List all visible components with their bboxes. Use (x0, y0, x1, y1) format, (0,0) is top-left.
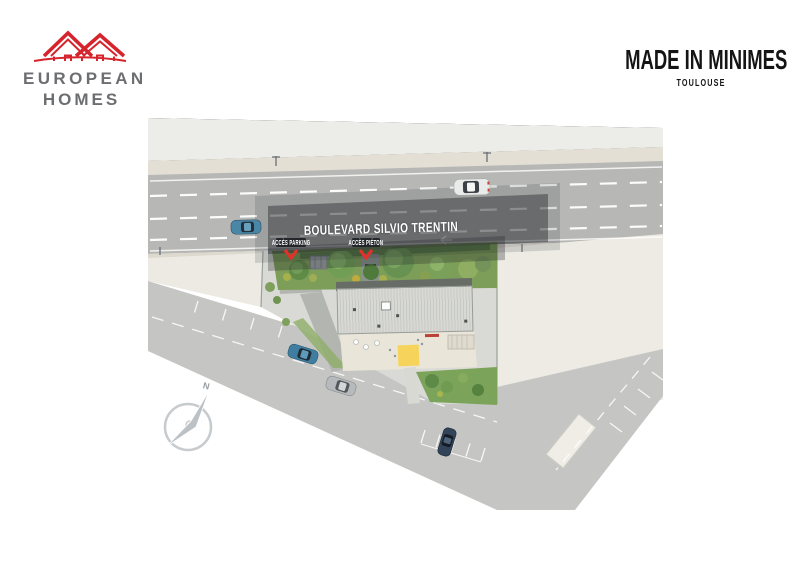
access-pedestrian-text: ACCÈS PIÉTON (349, 238, 384, 247)
site-plan (0, 0, 800, 565)
compass-needle (166, 391, 209, 447)
car-blue-boulevard (231, 220, 261, 235)
roof-vent (377, 325, 380, 328)
roof-skylight (381, 301, 391, 310)
roof-vent (353, 308, 356, 311)
access-pedestrian-label: ACCÈS PIÉTON (352, 238, 380, 247)
page: EUROPEAN HOMES MADE IN MINIMES TOULOUSE (0, 0, 800, 565)
car-white-boulevard (454, 179, 490, 196)
roof-vent (464, 320, 467, 323)
access-parking-label: ACCÈS PARKING (276, 238, 306, 247)
building-roof (336, 285, 473, 334)
access-parking-text: ACCÈS PARKING (272, 238, 310, 247)
compass (165, 391, 211, 450)
roof-vent (396, 314, 399, 317)
yellow-canopy (398, 345, 420, 367)
garden-strip (404, 367, 497, 405)
